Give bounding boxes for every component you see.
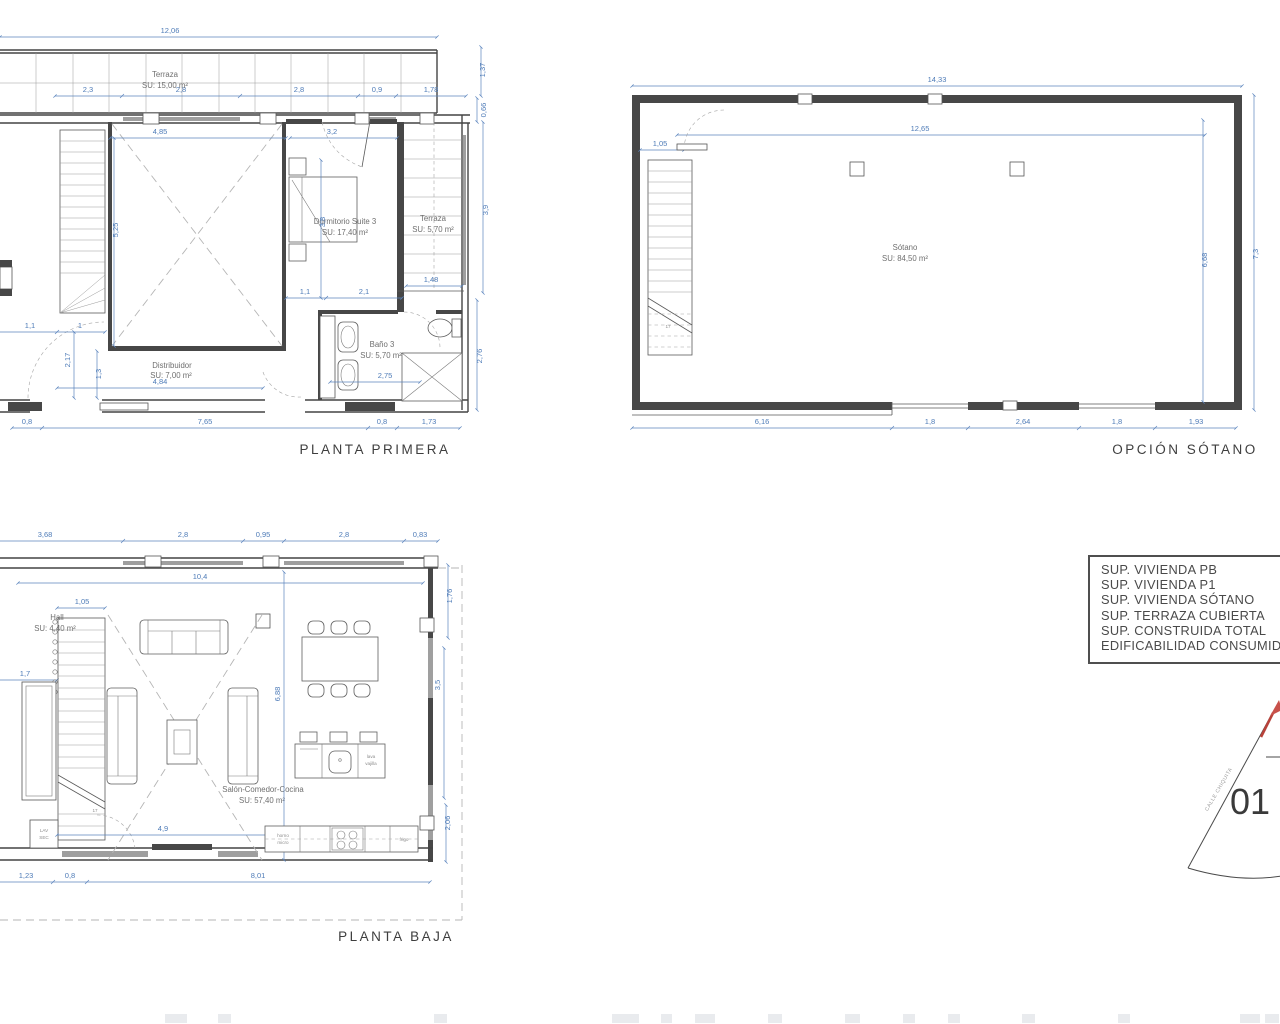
legend-line: EDIFICABILIDAD CONSUMIDA — [1101, 638, 1280, 653]
legend-line: SUP. CONSTRUIDA TOTAL — [1101, 623, 1280, 638]
dim-label: 1,3 — [94, 369, 103, 379]
dim-label: 2,76 — [475, 349, 484, 364]
plan-title: PLANTA PRIMERA — [299, 442, 450, 457]
dim-label: 0,9 — [372, 85, 382, 94]
staircase: 17 — [53, 618, 105, 840]
dim-label: 12,65 — [911, 124, 930, 133]
dim-label: 1,05 — [75, 597, 90, 606]
terrace-roof-grid — [0, 50, 437, 113]
fixture-label: frigo — [400, 837, 409, 842]
room-label: Distribuidor — [152, 361, 192, 370]
dim-label: 0,66 — [479, 103, 488, 118]
fixture-label: horno — [277, 833, 289, 838]
exterior-walls — [0, 556, 438, 862]
dim-label: 7,65 — [198, 417, 213, 426]
dim-label: 0,83 — [413, 530, 428, 539]
dim-label: 14,33 — [928, 75, 947, 84]
dim-label: 8,01 — [251, 871, 266, 880]
room-area: SU: 15,00 m² — [142, 81, 188, 90]
small-terrace: Terraza SU: 5,70 m² 1,48 — [397, 122, 464, 312]
dim-label: 1,37 — [478, 63, 487, 78]
dim-label: 0,95 — [256, 530, 271, 539]
dim-label: 6,88 — [273, 687, 282, 702]
step-count: 17 — [92, 808, 98, 813]
bottom-dims: 1,23 0,8 8,01 — [0, 871, 430, 884]
column — [850, 162, 864, 176]
plan-title: PLANTA BAJA — [338, 929, 454, 944]
dim-label: 2,64 — [1016, 417, 1031, 426]
dim-label: 5,25 — [111, 223, 120, 238]
dim-label: 4,9 — [158, 824, 168, 833]
dim-label: 3,8 — [318, 217, 327, 227]
dim-label: 0,8 — [377, 417, 387, 426]
room-label: Sótano — [893, 243, 918, 252]
dim-label: 3,5 — [433, 680, 442, 690]
dim-label: 3,2 — [327, 127, 337, 136]
dim-label: 2,17 — [63, 353, 72, 368]
wardrobe — [22, 682, 56, 800]
legend-line: SUP. VIVIENDA SÓTANO — [1101, 592, 1280, 607]
dim-top-total: 14,33 — [632, 75, 1242, 86]
dim-top-row: 3,68 2,8 0,95 2,8 0,83 — [0, 530, 438, 543]
dim-label: 10,4 — [193, 572, 208, 581]
dim-top-total: 12,06 — [0, 26, 437, 37]
dim-label: 1,48 — [424, 275, 439, 284]
fixture-label: vajilla — [365, 761, 377, 766]
bottom-dims: 6,16 1,8 2,64 1,8 1,93 — [632, 417, 1236, 430]
dim-label: 2,8 — [294, 85, 304, 94]
room-label: Terraza — [152, 70, 179, 79]
dim-label: 3,9 — [481, 205, 490, 215]
dim-label: 7,3 — [1251, 249, 1260, 259]
room-area: SU: 5,70 m² — [360, 351, 402, 360]
door-arc — [97, 815, 135, 848]
dim-label: 1,78 — [424, 85, 439, 94]
island-sink — [329, 751, 351, 773]
dim-label: 2,1 — [359, 287, 369, 296]
right-dims: 6,68 7,3 — [1200, 95, 1260, 410]
dim-label: 1 — [78, 321, 82, 330]
architectural-sheet: { "pp": { "title": "PLANTA PRIMERA", "ro… — [0, 0, 1280, 1024]
dim-label: 1,93 — [1189, 417, 1204, 426]
legend-line: SUP. VIVIENDA P1 — [1101, 577, 1280, 592]
dim-top-row: 2,3 2,8 2,8 0,9 1,78 — [55, 85, 466, 98]
wedge-arc — [1188, 868, 1280, 878]
dim-label: 1,8 — [1112, 417, 1122, 426]
step-count: 17 — [665, 324, 671, 329]
staircase — [60, 130, 105, 313]
dim-label: 1,23 — [19, 871, 34, 880]
room-label: Hall — [50, 613, 64, 622]
column — [1010, 162, 1024, 176]
room-area: SU: 5,70 m² — [412, 225, 454, 234]
dim-label: 1,05 — [653, 139, 668, 148]
room-label: Salón-Comedor-Cocina — [222, 785, 304, 794]
dim-label: 1,1 — [300, 287, 310, 296]
staircase: 17 — [648, 160, 692, 355]
basement-walls — [632, 94, 1242, 415]
kitchen-counter: horno micro frigo — [265, 826, 418, 852]
void-room — [108, 122, 286, 351]
basement-door — [677, 110, 724, 150]
dim-label: 2,75 — [378, 371, 393, 380]
fixture-label: lava — [367, 754, 376, 759]
dim-label: 3,68 — [38, 530, 53, 539]
nightstand — [289, 244, 306, 261]
room-area: SU: 84,50 m² — [882, 254, 928, 263]
area-legend: SUP. VIVIENDA PB SUP. VIVIENDA P1 SUP. V… — [1088, 555, 1280, 664]
dim-label: 6,68 — [1200, 253, 1209, 268]
bedroom-suite: Dormitorio Suite 3 SU: 17,40 m² — [286, 119, 397, 261]
right-dims: 1,37 0,66 3,9 2,76 — [475, 47, 490, 410]
dim-label: 1,1 — [25, 321, 35, 330]
dim-label: 12,06 — [161, 26, 180, 35]
room-area: SU: 17,40 m² — [322, 228, 368, 237]
room-area: SU: 57,40 m² — [239, 796, 285, 805]
nightstand — [289, 158, 306, 175]
kitchen-island: lava vajilla — [295, 732, 385, 778]
dining-table — [302, 621, 378, 697]
sofa-set — [107, 620, 258, 784]
fixture-label: micro — [277, 840, 289, 845]
room-label: Baño 3 — [370, 340, 395, 349]
bottom-dims: 0,8 7,65 0,8 1,73 — [12, 417, 460, 430]
dim-label: 1,7 — [20, 669, 30, 678]
planta-primera-plan: 12,06 2,3 2,8 2,8 0,9 1,78 — [0, 20, 500, 472]
fixture-label: SEC — [39, 835, 49, 840]
dim-label: 2,06 — [443, 816, 452, 831]
opcion-sotano-plan: 14,33 12,65 1,05 17 Sótano SU: 84,50 m² — [620, 70, 1280, 462]
site-location-marker: 01 CALLE CHIQUITA — [1150, 690, 1280, 890]
right-dims: 1,76 3,5 2,06 — [433, 565, 454, 862]
dim-label: 2,8 — [339, 530, 349, 539]
plan-title: OPCIÓN SÓTANO — [1112, 442, 1258, 457]
coffee-table — [167, 720, 197, 764]
parcel-highlight-cap — [1270, 700, 1280, 716]
laundry-closet: LAV SEC — [30, 820, 58, 848]
legend-line: SUP. TERRAZA CUBIERTA — [1101, 608, 1280, 623]
planta-baja-plan: 3,68 2,8 0,95 2,8 0,83 10,4 1,05 1,7 Hal… — [0, 530, 480, 950]
dim-label: 0,8 — [65, 871, 75, 880]
fixture-label: LAV — [40, 828, 49, 833]
room-area: SU: 4,40 m² — [34, 624, 76, 633]
dim-label: 0,8 — [22, 417, 32, 426]
plot-number: 01 — [1230, 781, 1270, 822]
dim-label: 1,73 — [422, 417, 437, 426]
parcel-highlight — [1261, 713, 1273, 737]
dim-label: 2,8 — [178, 530, 188, 539]
bathroom: Baño 3 SU: 5,70 m² 2,75 — [318, 310, 462, 401]
dim-label: 2,3 — [83, 85, 93, 94]
dim-label: 6,16 — [755, 417, 770, 426]
toilet — [428, 319, 452, 337]
dim-label: 1,8 — [925, 417, 935, 426]
dim-label: 1,76 — [445, 589, 454, 604]
legend-line: SUP. VIVIENDA PB — [1101, 562, 1280, 577]
dim-label: 4,84 — [153, 377, 168, 386]
dim-label: 4,85 — [153, 127, 168, 136]
room-label: Terraza — [420, 214, 447, 223]
